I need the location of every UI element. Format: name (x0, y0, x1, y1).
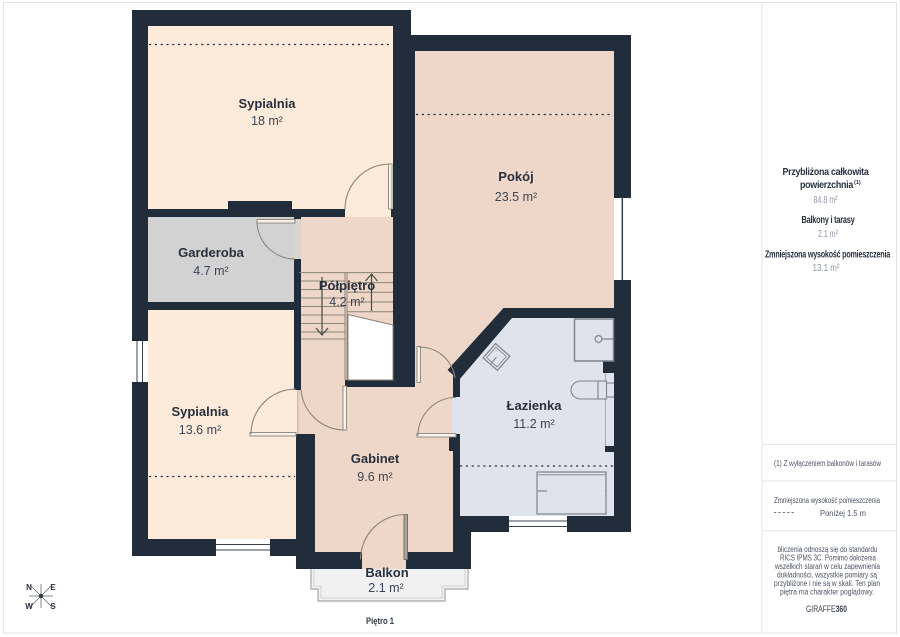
svg-text:Sypialnia: Sypialnia (238, 96, 296, 111)
svg-text:N: N (26, 583, 32, 592)
svg-text:W: W (25, 602, 33, 611)
svg-text:13.1 m²: 13.1 m² (813, 263, 841, 274)
svg-text:4.2 m²: 4.2 m² (329, 295, 364, 309)
svg-text:2.1 m²: 2.1 m² (368, 581, 403, 595)
svg-text:piętra ma charakter poglądowy.: piętra ma charakter poglądowy. (780, 588, 874, 597)
svg-text:E: E (50, 583, 56, 592)
svg-text:Łazienka: Łazienka (507, 398, 563, 413)
svg-text:2.1 m²: 2.1 m² (818, 229, 838, 240)
svg-text:Garderoba: Garderoba (178, 245, 245, 260)
svg-text:Zmniejszona wysokość pomieszcz: Zmniejszona wysokość pomieszczenia (765, 250, 891, 261)
svg-text:Poniżej 1.5 m: Poniżej 1.5 m (820, 508, 866, 518)
svg-text:(1) Z wyłączeniem balkonów i t: (1) Z wyłączeniem balkonów i tarasów (774, 458, 882, 468)
svg-text:4.7 m²: 4.7 m² (193, 264, 228, 278)
svg-text:11.2 m²: 11.2 m² (513, 417, 554, 431)
svg-text:Pokój: Pokój (498, 169, 533, 184)
svg-text:Balkon: Balkon (365, 565, 408, 580)
svg-text:Piętro 1: Piętro 1 (366, 616, 394, 626)
svg-text:Zmniejszona wysokość pomieszcz: Zmniejszona wysokość pomieszczenia (774, 495, 880, 505)
svg-text:9.6 m²: 9.6 m² (357, 470, 392, 484)
svg-text:S: S (50, 602, 56, 611)
svg-text:Półpiętro: Półpiętro (319, 278, 375, 293)
svg-text:(1): (1) (854, 180, 861, 186)
svg-text:Sypialnia: Sypialnia (171, 404, 229, 419)
svg-text:13.6 m²: 13.6 m² (179, 423, 221, 437)
svg-text:GIRAFFE360: GIRAFFE360 (806, 604, 847, 614)
svg-text:18 m²: 18 m² (251, 114, 283, 128)
svg-text:Gabinet: Gabinet (351, 451, 400, 466)
svg-text:powierzchnia: powierzchnia (800, 180, 854, 191)
svg-text:84.8 m²: 84.8 m² (814, 195, 838, 206)
svg-text:23.5 m²: 23.5 m² (495, 190, 537, 204)
svg-text:Balkony i tarasy: Balkony i tarasy (802, 215, 856, 226)
svg-text:Przybliżona całkowita: Przybliżona całkowita (783, 167, 870, 178)
